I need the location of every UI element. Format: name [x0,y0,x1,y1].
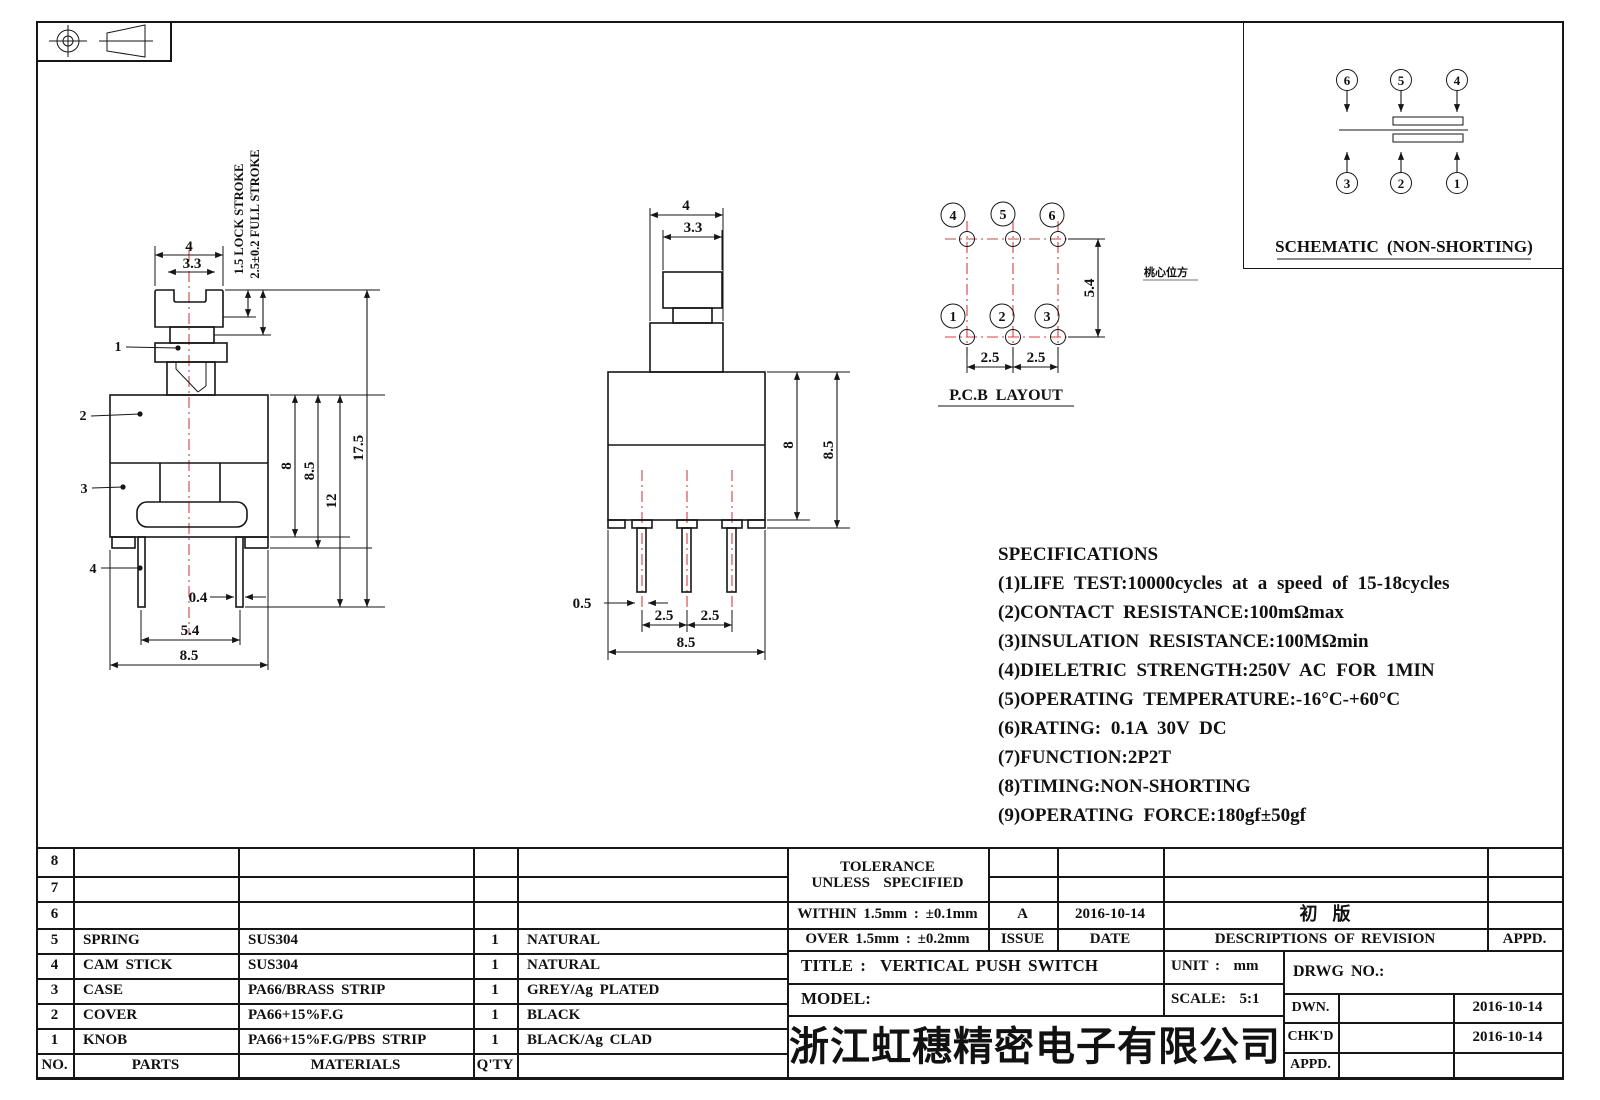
chkd-date: 2016-10-14 [1453,1022,1562,1052]
revision-issue-label: ISSUE [988,928,1057,950]
row-no: 7 [36,876,73,901]
row-part: SPRING [73,928,238,953]
front-dim-8: 8 [279,462,295,470]
drawing-sheet: 6 5 4 3 2 1 SCHEMATIC (NON-SHORTING) [0,0,1600,1100]
row-no: 6 [36,901,73,928]
dwn-label: DWN. [1283,993,1338,1022]
front-dim-4: 4 [185,239,193,255]
revision-description-label: DESCRIPTIONS OF REVISION [1163,928,1487,950]
row-color: GREY/Ag PLATED [517,978,787,1003]
schematic-panel: 6 5 4 3 2 1 SCHEMATIC (NON-SHORTING) [1243,23,1563,269]
revision-date-value: 2016-10-14 [1057,901,1163,928]
row-material: PA66+15%F.G [238,1003,473,1028]
spec-item: (2)CONTACT RESISTANCE:100mΩmax [998,598,1573,627]
side-dim-base-8-5: 8.5 [677,635,696,651]
row-material: SUS304 [238,953,473,978]
row-no: 5 [36,928,73,953]
spec-item: (5)OPERATING TEMPERATURE:-16°C-+60°C [998,685,1573,714]
specifications-title: SPECIFICATIONS [998,540,1573,569]
third-angle-projection-icon [38,23,170,60]
spec-item: (1)LIFE TEST:10000cycles at a speed of 1… [998,569,1573,598]
schematic-pin-1: 1 [1454,176,1461,191]
front-dim-0-4: 0.4 [189,590,208,606]
header-materials: MATERIALS [238,1053,473,1078]
front-lock-stroke-label: 1.5 LOCK STROKE [232,164,246,275]
spec-item: (9)OPERATING FORCE:180gf±50gf [998,801,1573,830]
part-leader-4: 4 [90,562,143,577]
row-part: COVER [73,1003,238,1028]
pcb-dim-2-5b: 2.5 [1027,350,1046,366]
dwn-date: 2016-10-14 [1453,993,1562,1022]
pcb-note: 桃心位方 [1144,265,1188,279]
row-no: 3 [36,978,73,1003]
tolerance-line2: UNLESS SPECIFIED [812,875,964,892]
row-no: 1 [36,1028,73,1053]
schematic-title: SCHEMATIC (NON-SHORTING) [1275,237,1533,256]
appd-label: APPD. [1283,1052,1338,1078]
row-qty: 1 [473,1003,517,1028]
pcb-pin-1: 1 [950,310,957,325]
unit-label: UNIT : mm [1163,950,1283,983]
row-part: CASE [73,978,238,1003]
spec-item: (7)FUNCTION:2P2T [998,743,1573,772]
side-dim-2-5b: 2.5 [701,608,720,624]
pcb-layout-drawing: 4 5 6 1 2 3 5.4 2.5 2.5 P.C.B LAYOUT 桃心位… [910,195,1210,425]
side-dim-8: 8 [781,441,797,449]
pcb-pin-2: 2 [999,310,1006,325]
side-dim-0-5: 0.5 [573,596,592,612]
row-color: NATURAL [517,953,787,978]
revision-description-value: 初 版 [1163,901,1487,928]
row-qty: 1 [473,928,517,953]
header-no: NO. [36,1053,73,1078]
model-label: MODEL: [787,983,1163,1015]
row-material: PA66/BRASS STRIP [238,978,473,1003]
schematic-pin-3: 3 [1344,176,1351,191]
svg-text:2: 2 [80,409,87,424]
tolerance-line1: TOLERANCE [840,859,935,876]
scale-label: SCALE: 5:1 [1163,983,1283,1015]
side-dim-2-5a: 2.5 [655,608,674,624]
tolerance-title: TOLERANCE UNLESS SPECIFIED [787,849,988,901]
schematic-drawing: 6 5 4 3 2 1 SCHEMATIC (NON-SHORTING) [1244,23,1563,268]
svg-text:4: 4 [90,562,97,577]
revision-appd-label: APPD. [1487,928,1562,950]
pcb-dim-2-5a: 2.5 [981,350,1000,366]
side-view-drawing: 4 3.3 8 8.5 0.5 2.5 2.5 8.5 [560,180,900,690]
header-parts: PARTS [73,1053,238,1078]
part-leader-2: 2 [80,409,143,424]
spec-item: (6)RATING: 0.1A 30V DC [998,714,1573,743]
front-dim-5-4: 5.4 [181,623,200,639]
row-part: CAM STICK [73,953,238,978]
pcb-dim-5-4: 5.4 [1082,278,1098,297]
schematic-pin-5: 5 [1398,73,1405,88]
row-no: 2 [36,1003,73,1028]
side-dim-4: 4 [682,198,690,214]
row-qty: 1 [473,953,517,978]
projection-symbol-box [38,23,172,62]
row-color: BLACK/Ag CLAD [517,1028,787,1053]
tolerance-within: WITHIN 1.5mm : ±0.1mm [787,901,988,928]
row-color: NATURAL [517,928,787,953]
row-part: KNOB [73,1028,238,1053]
pcb-pin-6: 6 [1049,209,1056,224]
row-material: SUS304 [238,928,473,953]
row-material: PA66+15%F.G/PBS STRIP [238,1028,473,1053]
front-view-drawing: 4 3.3 1.5 LOCK STROKE 2.5±0.2 FULL STROK… [40,130,400,690]
revision-issue-value: A [988,901,1057,928]
side-dim-3-3: 3.3 [684,220,703,236]
spec-item: (3)INSULATION RESISTANCE:100MΩmin [998,627,1573,656]
spec-item: (4)DIELETRIC STRENGTH:250V AC FOR 1MIN [998,656,1573,685]
schematic-pin-6: 6 [1344,73,1351,88]
row-qty: 1 [473,978,517,1003]
row-no: 8 [36,847,73,876]
front-dim-17-5: 17.5 [351,435,367,461]
side-dim-8-5: 8.5 [821,441,837,460]
front-dim-base-8-5: 8.5 [180,648,199,664]
svg-text:1: 1 [115,340,122,355]
front-full-stroke-label: 2.5±0.2 FULL STROKE [248,149,262,278]
schematic-pin-2: 2 [1398,176,1405,191]
company-name: 浙江虹穗精密电子有限公司 [787,1015,1283,1078]
pcb-layout-title: P.C.B LAYOUT [949,387,1063,404]
row-color: BLACK [517,1003,787,1028]
drwg-no-label: DRWG NO.: [1283,950,1562,993]
tolerance-over: OVER 1.5mm : ±0.2mm [787,928,988,950]
part-leader-3: 3 [81,482,126,497]
front-dim-12: 12 [324,494,340,509]
specifications-block: SPECIFICATIONS (1)LIFE TEST:10000cycles … [998,540,1573,830]
row-qty: 1 [473,1028,517,1053]
front-dim-8-5: 8.5 [302,462,318,481]
schematic-pin-4: 4 [1454,73,1461,88]
row-no: 4 [36,953,73,978]
pcb-pin-3: 3 [1044,310,1051,325]
chkd-label: CHK'D [1283,1022,1338,1052]
header-qty: Q'TY [473,1053,517,1078]
pcb-pin-4: 4 [950,209,957,224]
pcb-pin-5: 5 [1000,208,1007,223]
svg-text:3: 3 [81,482,88,497]
front-dim-3-3: 3.3 [183,256,202,272]
drawing-title: TITLE : VERTICAL PUSH SWITCH [787,950,1163,983]
revision-date-label: DATE [1057,928,1163,950]
spec-item: (8)TIMING:NON-SHORTING [998,772,1573,801]
